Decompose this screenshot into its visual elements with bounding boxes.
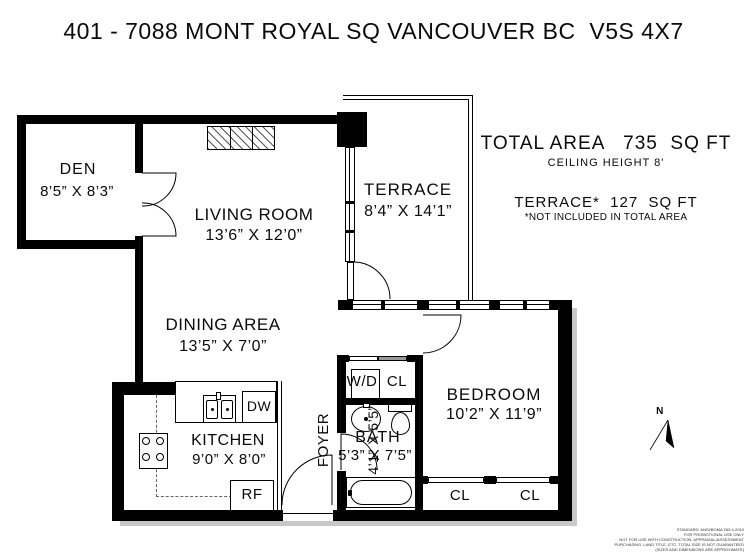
- sliding-door: [496, 477, 550, 483]
- wall-segment: [17, 240, 143, 249]
- builtin-divider: [230, 126, 231, 150]
- door-track-post: [550, 476, 558, 484]
- ceiling-height-text: CEILING HEIGHT 8': [470, 157, 742, 169]
- room-label-bath: BATH: [328, 429, 428, 447]
- stove-burner: [156, 437, 164, 445]
- refrigerator-label: RF: [230, 487, 274, 504]
- room-dims-kitchen: 9’0” X 8’0”: [169, 452, 289, 469]
- wall-segment: [550, 300, 572, 310]
- room-dims-dining: 13’5” X 7’0”: [143, 338, 303, 356]
- room-dims-bedroom: 10’2” X 11’9”: [424, 406, 564, 424]
- room-label-kitchen: KITCHEN: [168, 432, 288, 450]
- window-mullion: [381, 301, 385, 309]
- den-door-swing: [142, 173, 176, 206]
- window-mullion: [345, 230, 355, 233]
- sink-drain: [211, 408, 214, 411]
- entry-threshold: [283, 513, 333, 514]
- wall-segment: [135, 115, 143, 173]
- stove-burner: [142, 437, 150, 445]
- wall-segment: [135, 249, 143, 382]
- wall-segment: [338, 300, 352, 310]
- builtin-divider: [252, 126, 253, 150]
- faucet-icon: [216, 392, 221, 400]
- wall-segment: [490, 300, 499, 310]
- dishwasher-label: DW: [242, 399, 276, 414]
- stove-burner: [142, 453, 150, 461]
- wall-segment: [112, 382, 175, 395]
- fineprint-line: (SIZES AND DIMENSIONS ARE APPROXIMATE): [584, 547, 744, 552]
- bedroom-door-swing: [423, 315, 461, 353]
- room-label-dining: DINING AREA: [143, 316, 303, 335]
- door-track-post: [484, 476, 496, 484]
- wall-segment: [337, 355, 349, 362]
- wall-segment: [135, 236, 143, 249]
- wall-segment: [112, 395, 124, 521]
- wall-shadow: [120, 521, 576, 526]
- wall-segment: [333, 510, 572, 521]
- wall-segment: [418, 300, 428, 310]
- sliding-door: [378, 356, 407, 361]
- terrace-area-text: TERRACE* 127 SQ FT: [470, 195, 742, 212]
- room-label-foyer: FOYER 4’1” X 5’5”: [283, 375, 323, 505]
- door-track-post: [420, 476, 428, 484]
- door-leaf: [347, 262, 354, 300]
- stove-burner: [156, 453, 164, 461]
- sliding-door: [428, 477, 484, 483]
- room-dims-living: 13’6” X 12’0”: [174, 227, 334, 245]
- counter-dashed-edge: [156, 496, 232, 497]
- room-label-den: DEN: [33, 161, 123, 179]
- builtin-hatch: [207, 126, 275, 150]
- den-door-swing: [142, 203, 176, 236]
- room-dims-bath: 5’3” X 7’5”: [325, 448, 425, 465]
- window-mullion: [523, 301, 527, 309]
- area-summary: TOTAL AREA 735 SQ FT CEILING HEIGHT 8' T…: [470, 134, 742, 223]
- terrace-note-text: *NOT INCLUDED IN TOTAL AREA: [470, 212, 742, 223]
- wall-segment: [112, 510, 283, 521]
- wall-segment: [17, 115, 347, 124]
- room-dims-den: 8’5” X 8’3”: [17, 184, 137, 201]
- total-area-text: TOTAL AREA 735 SQ FT: [470, 134, 742, 155]
- closet-label: CL: [505, 488, 555, 505]
- window-mullion: [456, 301, 460, 309]
- room-label-living: LIVING ROOM: [174, 206, 334, 225]
- wall-shadow: [572, 308, 577, 526]
- room-dims-terrace: 8’4” X 14’1”: [347, 203, 469, 221]
- sliding-door: [349, 356, 378, 361]
- room-label-terrace: TERRACE: [347, 181, 469, 200]
- window: [352, 300, 418, 310]
- floor-plan: 401 - 7088 MONT ROYAL SQ VANCOUVER BC V5…: [0, 0, 747, 560]
- disclaimer-fineprint: STANDARD: ANSI/BOMA Z65.4-2010 FOR PROMO…: [584, 527, 744, 552]
- room-label-bedroom: BEDROOM: [424, 386, 564, 405]
- north-arrow-icon: [645, 416, 685, 456]
- wall-segment: [17, 115, 26, 249]
- plan-title: 401 - 7088 MONT ROYAL SQ VANCOUVER BC V5…: [0, 19, 747, 44]
- sink-drain: [226, 408, 229, 411]
- closet-label: CL: [435, 488, 485, 505]
